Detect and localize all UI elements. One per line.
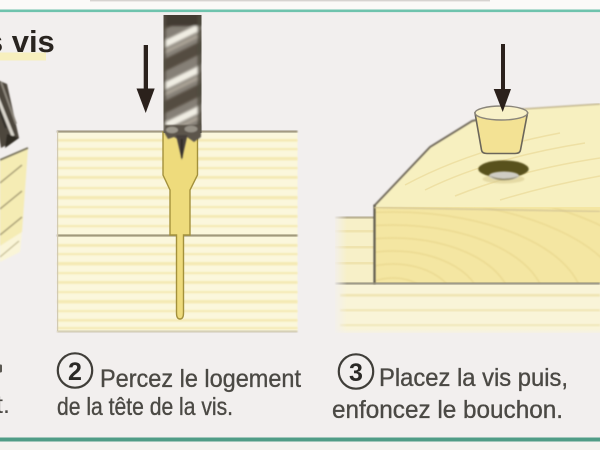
svg-text:Percez le logement: Percez le logement (100, 365, 301, 393)
svg-text:t.: t. (0, 391, 10, 419)
svg-text:les vis: les vis (0, 24, 55, 59)
svg-text:de la tête de la vis.: de la tête de la vis. (57, 393, 233, 421)
svg-text:enfoncez le bouchon.: enfoncez le bouchon. (332, 396, 563, 424)
svg-text:Placez la vis puis,: Placez la vis puis, (379, 364, 568, 392)
svg-text:2: 2 (68, 358, 82, 386)
svg-text:3: 3 (349, 359, 363, 387)
